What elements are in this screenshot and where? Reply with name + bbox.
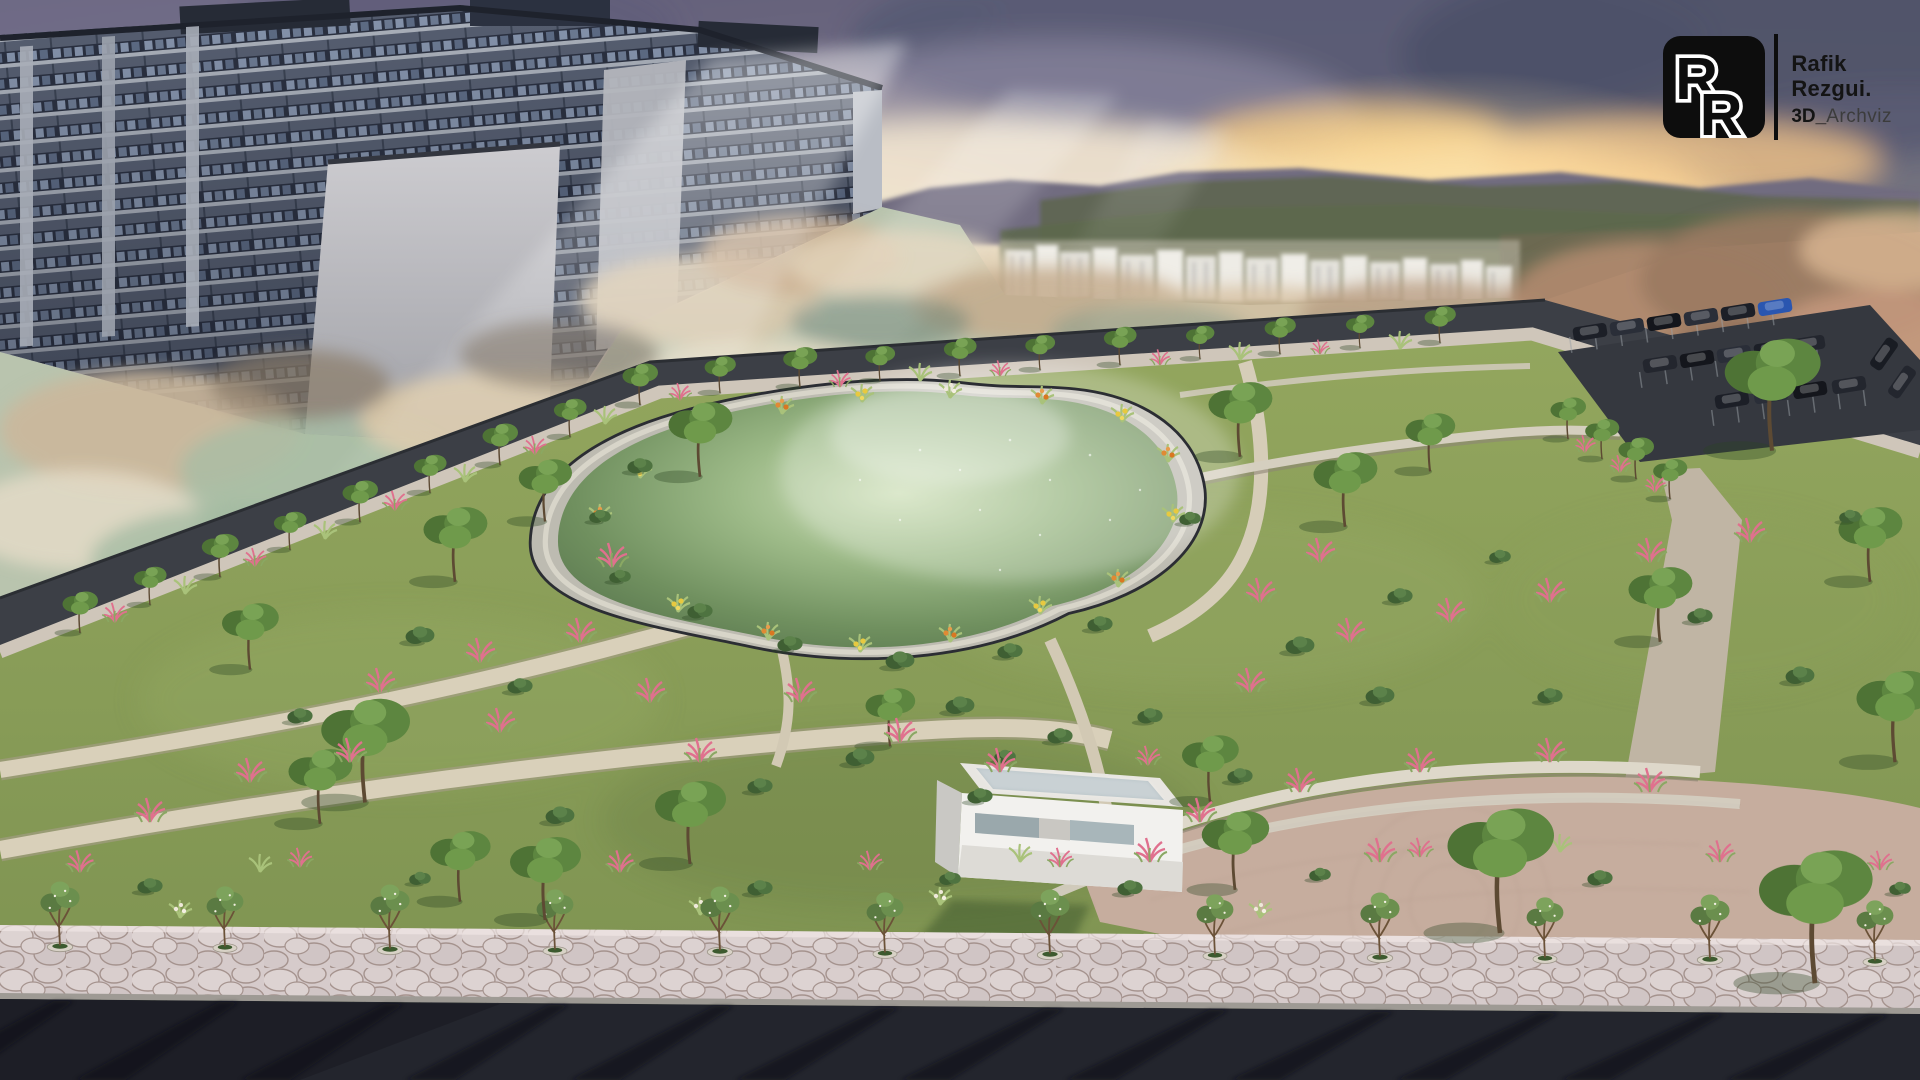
archviz-park-render: R R Rafik Rezgui. 3D_Archviz [0,0,1920,1080]
logo-brand-light: Archviz [1826,106,1892,127]
rr-monogram-icon: R R [1663,36,1765,138]
logo-name-line1: Rafik [1791,52,1892,77]
logo-divider [1774,34,1778,140]
logo-name-line2: Rezgui. [1791,77,1892,102]
render-scene [0,0,1920,1080]
logo-lockup: R R Rafik Rezgui. 3D_Archviz [1663,36,1892,140]
logo-brand-line: 3D_Archviz [1791,106,1892,128]
monogram-letter: R [1700,81,1743,138]
logo-text: Rafik Rezgui. 3D_Archviz [1791,36,1892,128]
logo-brand-bold: 3D_ [1791,106,1826,127]
